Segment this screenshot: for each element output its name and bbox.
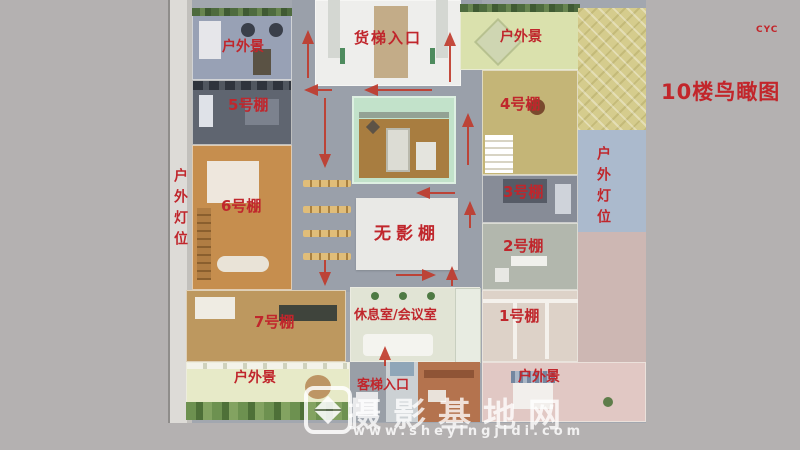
elevator-door [328, 0, 340, 58]
elevator-door [436, 0, 448, 58]
door-accent [430, 48, 435, 64]
prop-shelf [303, 230, 351, 237]
pen-nib-icon [314, 396, 342, 424]
furniture [195, 297, 235, 319]
prop-shelf [303, 180, 351, 187]
furniture [511, 256, 547, 266]
room-center-workroom [352, 96, 456, 184]
outdoor-scene-bottom-right-label: 户外景 [518, 370, 560, 385]
room-shadowless-studio: 无影棚 [356, 198, 458, 270]
partition [545, 299, 549, 359]
furniture [197, 208, 211, 280]
furniture [199, 21, 221, 59]
right-strip-top [578, 8, 646, 130]
studio-5-label: 5号棚 [228, 97, 268, 114]
door-accent [340, 48, 345, 64]
furniture [495, 268, 509, 282]
furniture [193, 81, 291, 90]
outdoor-scene-top-right-label: 户外景 [500, 30, 542, 45]
hedge [460, 4, 580, 12]
plant [427, 292, 435, 300]
watermark-logo-icon [304, 386, 352, 434]
page-title: 10楼鸟瞰图 [661, 76, 780, 106]
furniture [241, 23, 255, 37]
right-strip-bottom [578, 232, 646, 362]
studio-1-label: 1号棚 [499, 308, 539, 325]
freight-elevator-label: 货梯入口 [354, 30, 422, 47]
room-studio-4 [482, 70, 578, 175]
porch-columns [187, 363, 349, 369]
room-studio-1 [482, 290, 578, 362]
watermark-url: www.sheyingjidi.com [353, 424, 584, 439]
plant [603, 397, 613, 407]
plant [371, 292, 379, 300]
furniture [390, 362, 414, 376]
partition [483, 299, 579, 303]
shelf [424, 370, 474, 378]
furniture [269, 23, 283, 37]
stairs [485, 135, 513, 173]
cabinet [455, 288, 481, 363]
lounge-meeting-label: 休息室/会议室 [354, 309, 437, 323]
outdoor-lights-right-label: 户外灯位 [593, 146, 613, 230]
room-lounge-meeting [350, 287, 480, 362]
hedge [192, 8, 292, 16]
prop-shelf [303, 206, 351, 213]
plant [399, 292, 407, 300]
studio-2-label: 2号棚 [503, 238, 543, 255]
studio-4-label: 4号棚 [500, 96, 540, 113]
room-studio-2 [482, 223, 578, 290]
furniture [416, 142, 436, 170]
table [363, 334, 433, 356]
room-studio-6 [192, 145, 292, 290]
shelf-band [359, 112, 449, 118]
outdoor-lights-left-label: 户外灯位 [170, 168, 190, 252]
furniture [555, 184, 571, 214]
studio-7-label: 7号棚 [254, 314, 294, 331]
outdoor-scene-bottom-left-label: 户外景 [234, 371, 276, 386]
outdoor-scene-top-left-label: 户外景 [222, 40, 264, 55]
prop-shelf [303, 253, 351, 260]
studio-3-label: 3号棚 [503, 184, 543, 201]
credit-badge: CYC [756, 25, 778, 35]
furniture [199, 95, 213, 127]
shadowless-studio-label: 无影棚 [374, 225, 440, 244]
floor-plan: 无影棚 [168, 0, 646, 423]
furniture [217, 256, 269, 272]
furniture [386, 128, 410, 172]
studio-6-label: 6号棚 [221, 198, 261, 215]
